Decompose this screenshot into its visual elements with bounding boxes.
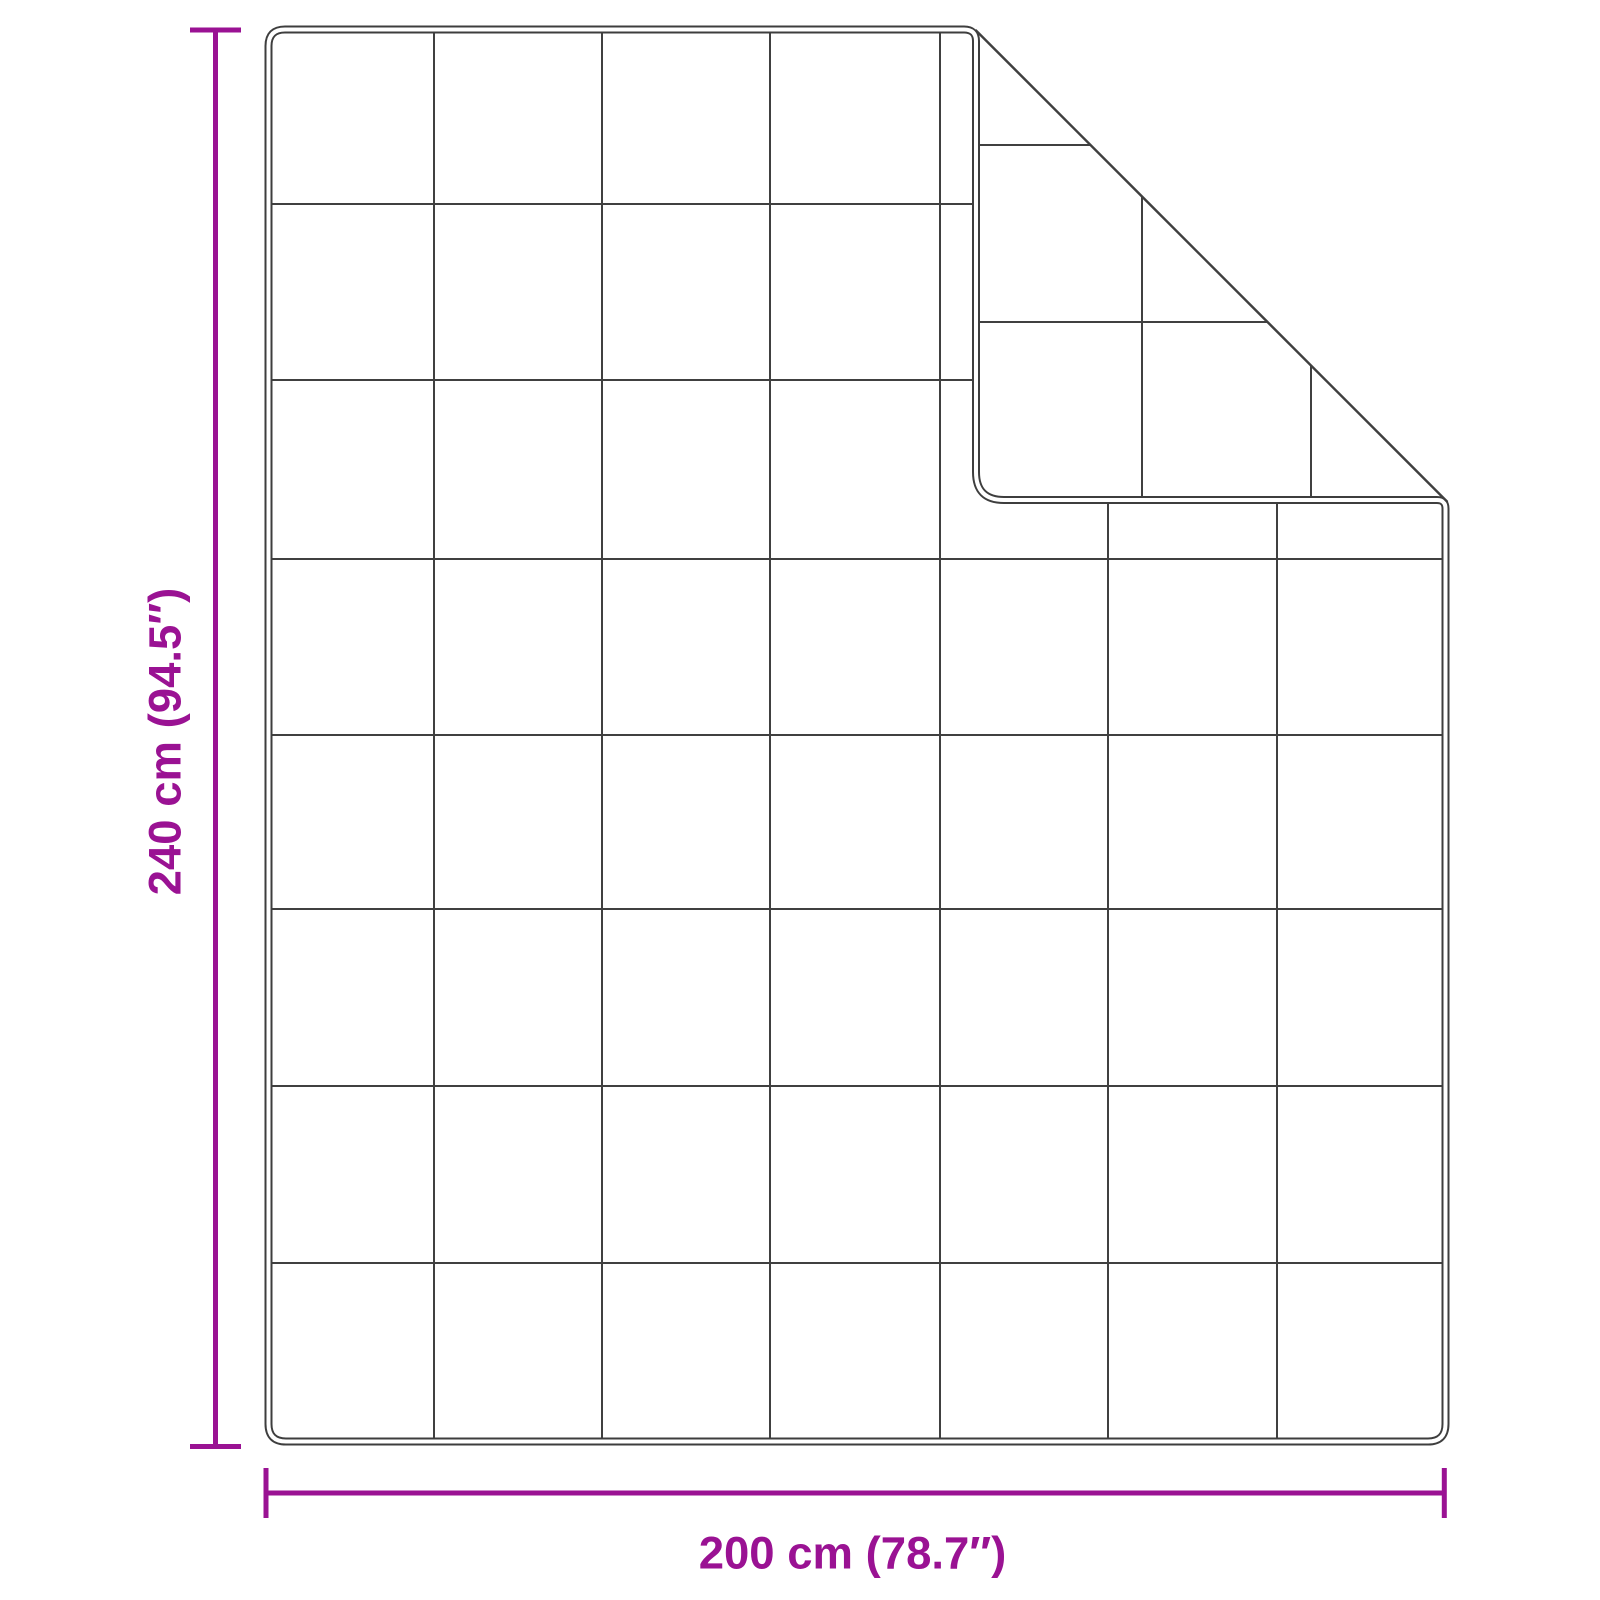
svg-text:240 cm (94.5″): 240 cm (94.5″) [140, 588, 191, 896]
svg-text:200 cm (78.7″): 200 cm (78.7″) [699, 1528, 1007, 1579]
